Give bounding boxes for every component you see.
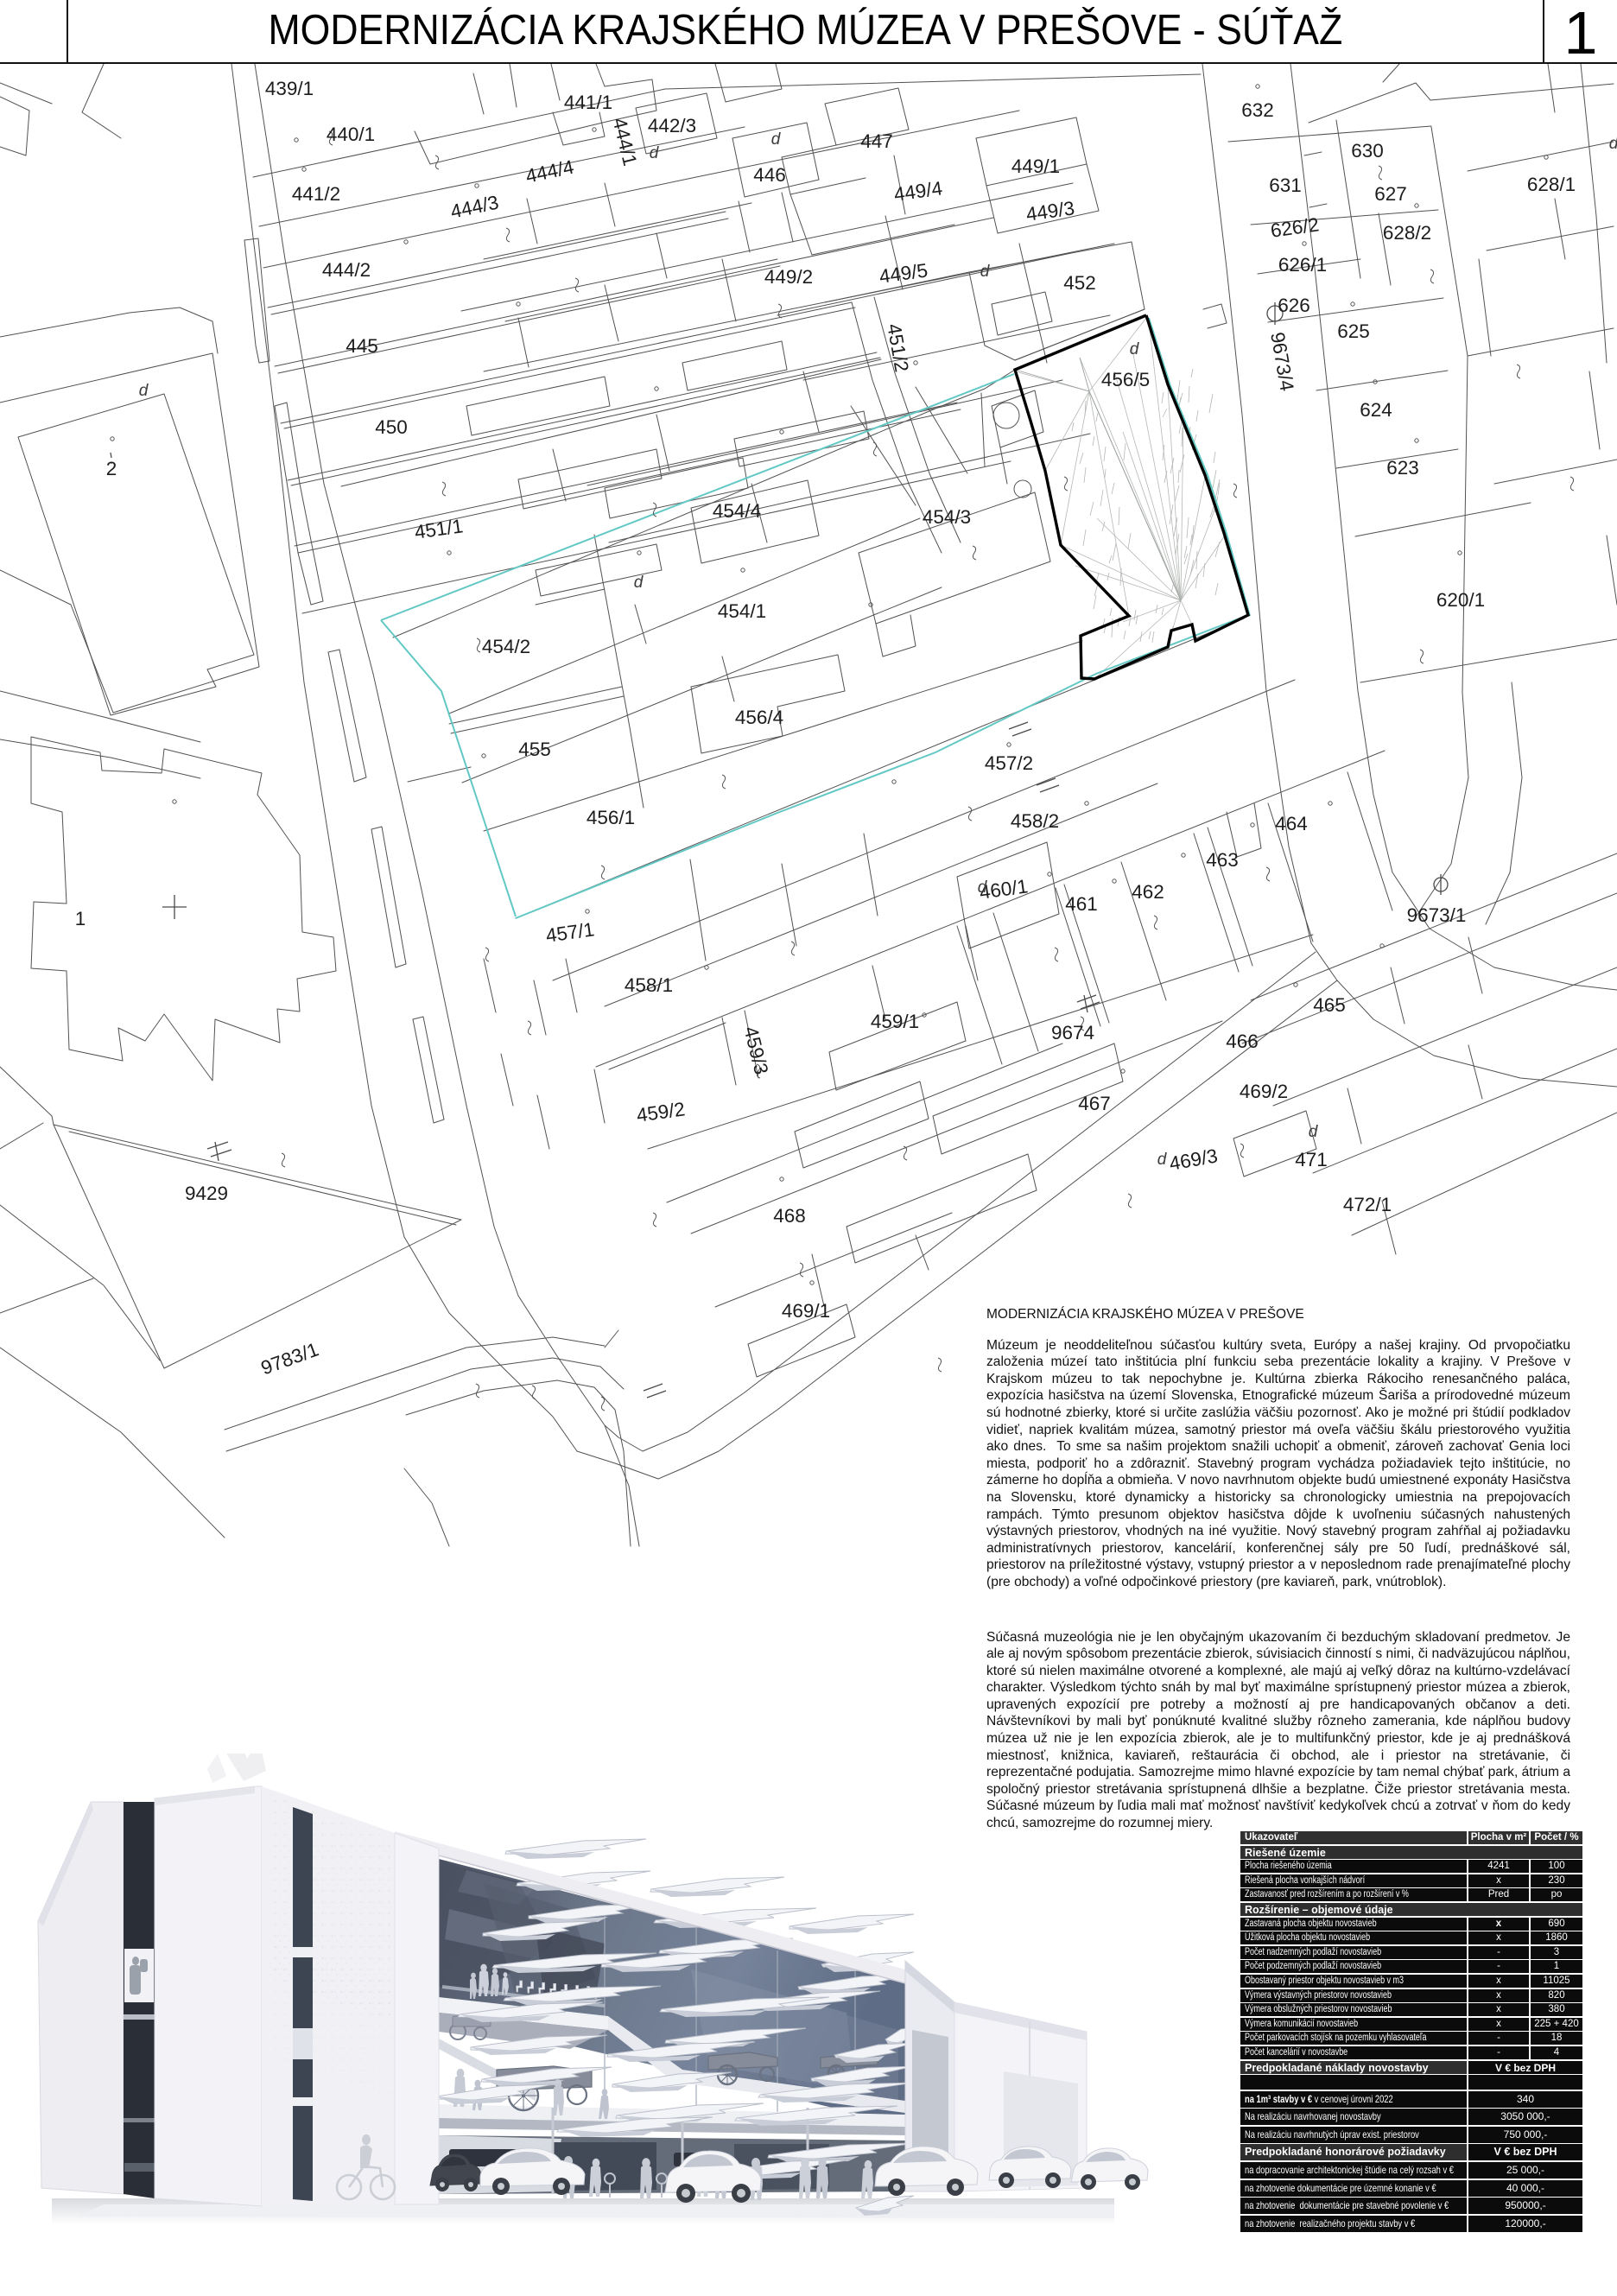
svg-text:472/1: 472/1	[1343, 1194, 1392, 1215]
svg-text:441/2: 441/2	[292, 183, 340, 205]
svg-text:467: 467	[1078, 1093, 1111, 1114]
svg-text:9783/1: 9783/1	[258, 1338, 321, 1379]
svg-text:450: 450	[375, 416, 408, 438]
svg-text:456/1: 456/1	[587, 807, 635, 828]
svg-text:457/2: 457/2	[985, 752, 1033, 774]
svg-text:9674: 9674	[1051, 1022, 1094, 1043]
svg-text:449/3: 449/3	[1024, 197, 1075, 225]
svg-text:628/2: 628/2	[1383, 222, 1431, 244]
svg-text:d: d	[771, 130, 782, 149]
svg-text:9429: 9429	[185, 1183, 228, 1204]
svg-text:462: 462	[1132, 881, 1164, 903]
svg-text:446: 446	[753, 164, 786, 186]
svg-text:445: 445	[346, 335, 378, 357]
svg-text:449/1: 449/1	[1011, 155, 1060, 177]
svg-text:d: d	[650, 144, 660, 162]
svg-text:631: 631	[1269, 174, 1302, 196]
svg-text:463: 463	[1206, 849, 1239, 871]
svg-text:454/3: 454/3	[923, 506, 971, 528]
svg-text:d: d	[1157, 1151, 1168, 1169]
svg-text:457/1: 457/1	[544, 918, 595, 947]
svg-text:455: 455	[518, 739, 551, 760]
svg-text:449/4: 449/4	[892, 177, 943, 206]
svg-text:632: 632	[1241, 99, 1274, 121]
svg-text:444/3: 444/3	[448, 192, 500, 223]
svg-text:449/5: 449/5	[878, 259, 929, 288]
svg-text:2: 2	[106, 458, 117, 479]
svg-text:9673/1: 9673/1	[1407, 904, 1467, 926]
svg-text:626/1: 626/1	[1278, 254, 1327, 276]
svg-text:441/1: 441/1	[564, 92, 612, 113]
svg-text:620/1: 620/1	[1436, 589, 1485, 611]
svg-text:458/2: 458/2	[1011, 810, 1059, 832]
svg-text:451/1: 451/1	[413, 515, 464, 543]
svg-text:1: 1	[75, 908, 86, 929]
svg-text:459/2: 459/2	[635, 1098, 686, 1126]
svg-text:626: 626	[1278, 295, 1310, 316]
svg-text:d: d	[634, 574, 644, 592]
svg-text:d: d	[1309, 1123, 1319, 1141]
svg-text:456/5: 456/5	[1101, 369, 1150, 390]
svg-text:630: 630	[1351, 140, 1384, 162]
svg-text:454/4: 454/4	[713, 500, 761, 522]
svg-text:444/1: 444/1	[608, 116, 641, 168]
svg-text:9673/4: 9673/4	[1266, 331, 1298, 393]
svg-text:447: 447	[860, 130, 893, 152]
svg-text:440/1: 440/1	[327, 124, 375, 145]
svg-text:458/1: 458/1	[625, 974, 673, 996]
svg-text:444/2: 444/2	[322, 259, 371, 281]
svg-text:d: d	[1609, 135, 1617, 153]
svg-text:625: 625	[1337, 320, 1370, 342]
svg-text:464: 464	[1275, 813, 1308, 834]
svg-text:469/2: 469/2	[1240, 1081, 1288, 1102]
svg-text:626/2: 626/2	[1269, 213, 1320, 242]
svg-text:469/1: 469/1	[782, 1300, 830, 1322]
svg-text:449/2: 449/2	[764, 266, 813, 288]
svg-text:d: d	[1130, 340, 1140, 358]
svg-text:444/4: 444/4	[523, 156, 575, 187]
svg-text:628/1: 628/1	[1527, 174, 1576, 195]
svg-text:454/1: 454/1	[718, 600, 766, 622]
svg-text:461: 461	[1065, 893, 1098, 915]
svg-text:623: 623	[1386, 457, 1419, 479]
svg-text:451/2: 451/2	[883, 322, 912, 374]
svg-text:459/1: 459/1	[871, 1011, 919, 1032]
svg-text:466: 466	[1226, 1031, 1259, 1052]
svg-text:d: d	[139, 382, 149, 400]
svg-text:468: 468	[773, 1205, 806, 1227]
svg-text:627: 627	[1374, 183, 1407, 205]
svg-text:454/2: 454/2	[482, 636, 530, 657]
svg-text:d: d	[978, 878, 988, 897]
svg-text:471: 471	[1295, 1149, 1328, 1170]
svg-text:442/3: 442/3	[648, 115, 696, 136]
svg-text:439/1: 439/1	[265, 78, 314, 99]
svg-text:624: 624	[1360, 399, 1392, 421]
svg-text:469/3: 469/3	[1168, 1145, 1220, 1174]
svg-text:465: 465	[1313, 994, 1346, 1016]
svg-text:459/3: 459/3	[739, 1024, 772, 1077]
svg-text:d: d	[980, 263, 991, 281]
svg-text:452: 452	[1063, 272, 1096, 294]
svg-text:456/4: 456/4	[735, 707, 783, 728]
